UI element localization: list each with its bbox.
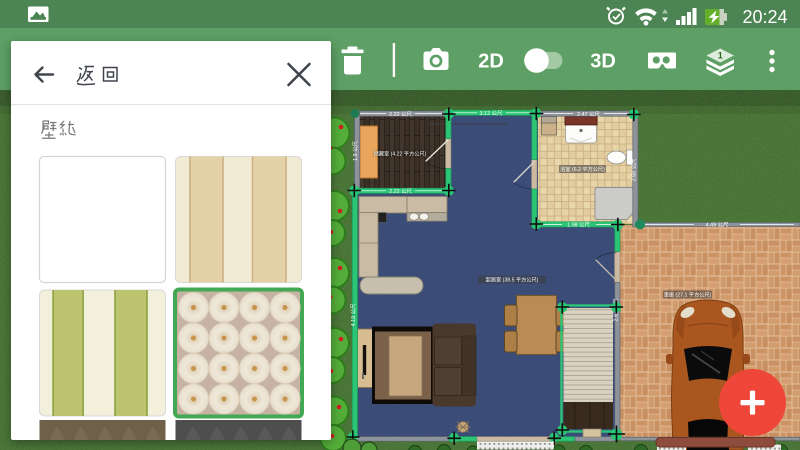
svg-text:2.47 公尺: 2.47 公尺 [577, 111, 600, 118]
svg-text:4.49 公尺: 4.49 公尺 [706, 222, 729, 229]
svg-text:1.98 公尺: 1.98 公尺 [567, 222, 590, 229]
svg-text:20:24: 20:24 [742, 7, 787, 27]
svg-text:3D: 3D [590, 51, 616, 73]
svg-text:4.19 公尺: 4.19 公尺 [350, 303, 357, 326]
svg-text:3.12 公尺: 3.12 公尺 [480, 110, 503, 117]
svg-text:2D: 2D [478, 51, 504, 73]
svg-text:1: 1 [718, 51, 723, 61]
svg-text:储藏室 (4.22 平方公尺): 储藏室 (4.22 平方公尺) [374, 150, 427, 158]
svg-text:浴室 (6.2 平方公尺): 浴室 (6.2 平方公尺) [560, 165, 605, 173]
svg-text:1.9 公尺: 1.9 公尺 [352, 141, 359, 161]
svg-text:2.22 公尺: 2.22 公尺 [389, 188, 412, 195]
svg-text:車庫 (27.1 平方公尺): 車庫 (27.1 平方公尺) [664, 291, 712, 299]
svg-text:起居室 (38.5 平方公尺): 起居室 (38.5 平方公尺) [486, 276, 539, 284]
svg-text:2.68 公尺: 2.68 公尺 [631, 158, 638, 181]
svg-text:2.22 公尺: 2.22 公尺 [389, 111, 412, 118]
